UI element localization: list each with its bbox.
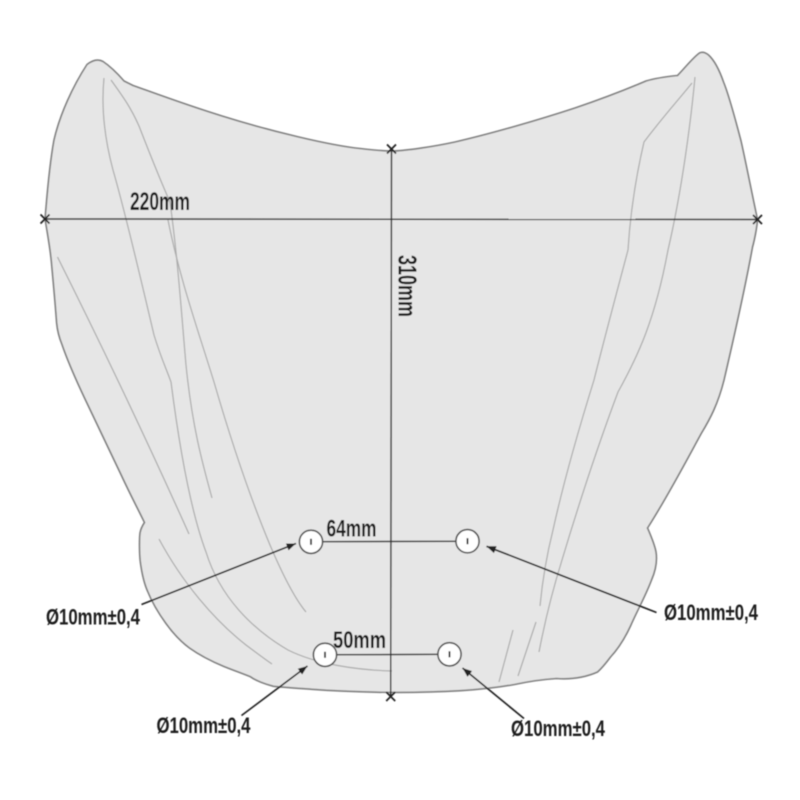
- svg-text:Ø10mm±0,4: Ø10mm±0,4: [511, 716, 606, 741]
- svg-text:50mm: 50mm: [333, 627, 386, 654]
- svg-text:Ø10mm±0,4: Ø10mm±0,4: [46, 605, 141, 630]
- svg-text:64mm: 64mm: [327, 516, 377, 543]
- svg-text:Ø10mm±0,4: Ø10mm±0,4: [664, 600, 759, 625]
- svg-text:310mm: 310mm: [393, 255, 423, 317]
- svg-text:Ø10mm±0,4: Ø10mm±0,4: [157, 713, 252, 738]
- svg-text:220mm: 220mm: [130, 188, 190, 216]
